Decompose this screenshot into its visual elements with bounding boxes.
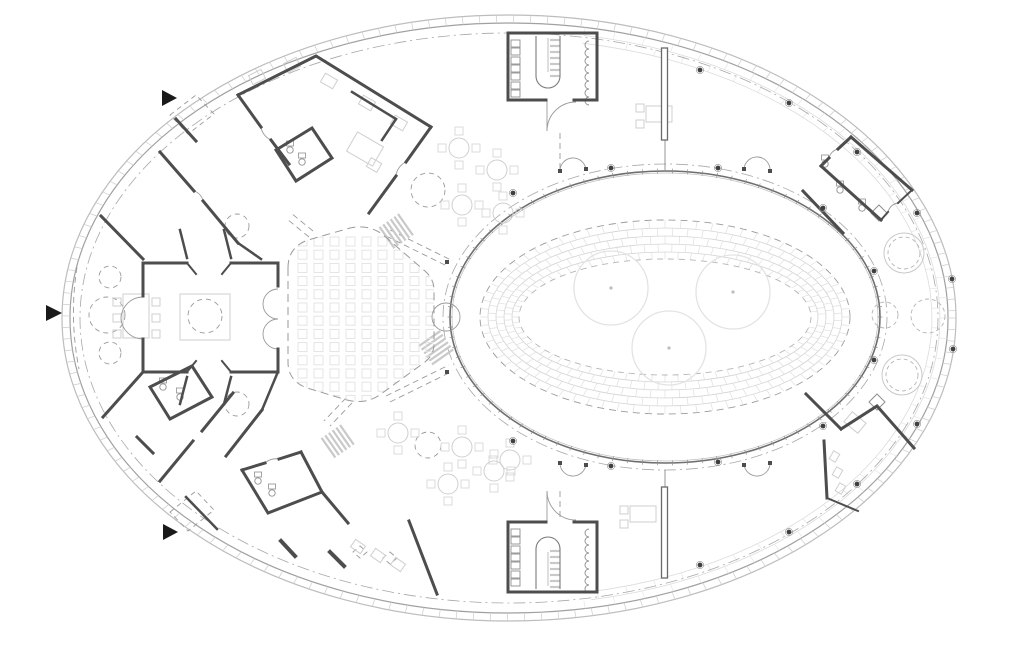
auditorium-seat [378,277,387,286]
brick-joint [492,335,500,337]
auditorium-seat [346,369,355,378]
door-post [558,169,562,173]
partition-track-dashed [386,365,449,396]
auditorium-seat [394,316,403,325]
brick-joint [568,251,573,258]
brick-joint [687,229,688,237]
brick-joint [523,374,529,379]
auditorium-seat [314,329,323,338]
brick-joint [587,398,590,405]
auditorium-seat [394,290,403,299]
brick-joint [612,232,614,240]
facade-tick [880,157,887,161]
brick-joint [703,254,705,261]
auditorium-seat [314,369,323,378]
facade-tick [73,383,81,385]
facade-tick [70,372,78,373]
brick-joint [768,373,773,379]
brick-joint [481,309,489,310]
brick-joint [502,296,510,298]
facade-band-joint [613,596,615,604]
auditorium-seat [410,382,419,391]
brick-joint [743,238,747,245]
facade-tick [877,479,884,483]
wall [330,552,344,566]
locker [511,65,520,72]
brick-joint [785,280,791,284]
brick-joint [825,310,833,311]
brick-joint [768,358,773,363]
wall [180,377,187,404]
door-post [742,463,746,467]
brick-joint [815,354,822,358]
facade-tick [792,87,797,93]
brick-joint [514,306,521,307]
brick-joint [508,331,516,333]
door-swing [396,162,406,176]
auditorium-seat [314,395,323,404]
facade-tick [241,75,246,81]
brick-joint [603,377,606,384]
brick-joint [738,367,742,373]
brick-joint [594,383,597,390]
brick-joint [497,323,505,324]
facade-band-joint [926,366,934,367]
brick-joint [747,372,751,379]
brick-joint [790,380,796,386]
auditorium-seat [410,356,419,365]
facade-band-joint [875,470,882,474]
facade-tick [142,486,149,491]
brick-joint [516,289,523,292]
wall [881,212,888,220]
brick-joint [811,295,819,297]
brick-joint [817,325,825,326]
facade-tick [462,17,463,25]
brick-joint [678,375,679,382]
locker [511,90,520,97]
brick-joint [810,261,817,266]
brick-joint [517,332,524,334]
brick-joint [707,388,709,396]
facade-tick [65,350,73,351]
brick-joint [839,300,847,301]
brick-joint [696,405,697,413]
auditorium-seat [362,263,371,272]
facade-tick [946,287,954,288]
skylight-dashed-circle [411,173,445,207]
facade-band-joint [758,544,763,550]
brick-joint [613,372,615,379]
brick-joint [567,259,572,265]
brick-joint [779,369,785,375]
brick-joint [512,283,519,286]
locker [511,82,520,89]
wall [851,137,912,190]
brick-joint [736,375,740,382]
brick-joint [758,369,763,375]
auditorium-seat [378,237,387,246]
brick-joint [545,377,550,383]
auditorium-seat [394,263,403,272]
brick-joint [497,310,505,311]
wall [276,128,332,181]
brick-joint [650,236,651,244]
locker [511,546,520,553]
table-or-desk [113,314,121,322]
brick-joint [497,355,504,358]
auditorium-seat [314,382,323,391]
facade-tick [223,545,228,551]
auditorium-seat [426,263,435,272]
facade-tick [395,25,397,33]
chair [458,426,466,434]
brick-joint [814,301,822,303]
auditorium-seat [378,290,387,299]
wall [203,201,238,243]
auditorium-seat [362,277,371,286]
brick-joint [546,243,551,249]
auditorium-seat [314,250,323,259]
wc-cistern [299,153,306,158]
brick-joint [617,223,619,231]
brick-joint [505,325,513,326]
brick-joint [814,331,822,333]
chair [475,201,483,209]
facade-tick [152,496,158,501]
brick-joint [743,389,747,396]
brick-joint [578,372,582,379]
brick-joint [534,380,540,386]
brick-joint [516,269,523,273]
brick-joint [607,386,610,394]
auditorium-seat [362,329,371,338]
auditorium-seat [346,263,355,272]
locker [511,537,520,544]
column-dot [511,191,516,196]
chair [377,429,385,437]
brick-joint [556,263,561,269]
brick-joint [830,335,838,337]
brick-joint [535,372,541,377]
brick-joint [768,271,773,276]
facade-band-joint [725,63,729,70]
brick-joint [833,305,841,306]
brick-joint [557,381,562,387]
brick-joint [703,373,705,380]
brick-joint [730,392,733,399]
table-or-desk [371,548,386,562]
brick-joint [567,369,572,375]
facade-tick [662,34,665,41]
auditorium-seat [426,395,435,404]
brick-joint [602,226,605,234]
column-dot [609,464,614,469]
planter-dashed [872,302,898,328]
facade-tick [825,523,831,529]
auditorium-seat [378,263,387,272]
chair [444,497,452,505]
brick-joint [687,397,688,405]
facade-tick [656,596,659,604]
facade-tick [672,592,675,599]
brick-joint [768,246,773,252]
facade-band-joint [889,192,896,196]
door-swing [560,158,586,172]
chair [499,226,507,234]
facade-tick [136,151,143,155]
facade-tick [547,16,548,24]
facade-tick [868,488,875,493]
auditorium-seat [330,316,339,325]
brick-course [512,252,818,382]
auditorium-seat [410,303,419,312]
wall [103,372,143,417]
brick-joint [768,365,773,371]
facade-band-joint [931,257,939,259]
round-table [438,474,458,494]
brick-joint [636,389,637,397]
brick-joint [519,354,526,358]
brick-joint [702,396,704,404]
brick-joint [768,255,773,261]
brick-joint [680,220,681,228]
brick-joint [801,255,807,260]
wall [369,176,396,213]
facade-tick [934,242,942,244]
brick-joint [557,271,562,276]
facade-band-joint [774,544,779,550]
brick-joint [508,276,515,280]
facade-tick [71,258,79,260]
brick-joint [630,380,632,388]
markers-layer [46,66,957,568]
brick-joint [756,385,760,392]
partition-track-dashed [291,213,313,231]
wall [238,95,261,127]
facade-band-joint [860,158,867,162]
brick-joint [801,347,808,351]
brick-joint [825,355,832,358]
brick-joint [707,239,709,247]
brick-joint [523,255,529,260]
brick-joint [638,253,639,260]
auditorium-seat [298,329,307,338]
auditorium-seat [426,250,435,259]
skylight-dashed-circle [188,299,222,333]
brick-joint [826,341,834,343]
brick-joint [486,340,494,342]
brick-joint [815,276,822,280]
facade-tick [924,219,932,222]
brick-joint [836,292,844,294]
wall [322,492,348,523]
facade-tick [389,602,391,610]
brick-joint [693,389,694,397]
brick-joint [486,292,494,294]
brick-joint [589,261,593,267]
brick-joint [824,303,832,304]
auditorium-seat [346,316,355,325]
brick-joint [679,236,680,244]
brick-joint [811,348,818,351]
brick-joint [808,361,815,365]
brick-joint [633,221,634,229]
door-swing [261,127,271,140]
wall [898,190,912,203]
brick-joint [491,284,499,287]
facade-tick [456,611,457,619]
facade-tick [805,94,810,100]
facade-tick [372,599,374,607]
facade-band-joint [613,32,615,40]
facade-tick [922,418,930,421]
freestanding-wall [662,487,668,578]
coat-hook [585,537,589,545]
wc-fixture [269,490,275,496]
facade-tick [115,457,122,461]
planter-outer [884,233,924,273]
auditorium-seat [410,237,419,246]
auditorium-seat [426,369,435,378]
brick-joint [711,403,713,411]
facade-tick [894,459,901,463]
brick-joint [602,401,605,409]
brick-joint [557,358,562,363]
chair [461,480,469,488]
brick-joint [625,373,627,380]
facade-band-joint [923,397,931,399]
door-post [584,167,588,171]
brick-joint [804,354,811,358]
brick-joint [516,361,523,365]
brick-joint [720,386,723,394]
brick-joint [716,394,718,402]
facade-tick [340,591,343,598]
auditorium-seat [330,263,339,272]
facade-tick [788,546,793,552]
brick-joint [532,285,538,289]
brick-joint [726,226,729,234]
facade-tick [127,161,134,165]
table-or-desk [636,104,644,112]
brick-joint [537,273,543,278]
facade-tick [858,497,864,502]
brick-joint [833,328,841,329]
facade-tick [840,119,846,124]
tree-trunk [731,290,734,293]
brick-joint [540,350,546,354]
auditorium-seat [346,382,355,391]
partition-track-dashed [330,403,352,426]
floor-plan-page [0,0,1024,653]
facade-band-joint [803,519,809,525]
column-dot [609,166,614,171]
auditorium-layer [288,227,435,405]
brick-joint [698,246,700,254]
brick-joint [497,276,504,279]
brick-joint [749,365,753,371]
brick-joint [511,295,519,297]
brick-joint [730,235,733,242]
door-post [445,370,449,374]
facade-tick [940,374,948,376]
brick-joint [546,385,551,391]
brick-joint [603,250,606,257]
brick-joint [536,265,542,270]
chair [523,456,531,464]
auditorium-seat [346,237,355,246]
auditorium-seat [330,356,339,365]
facade-tick [411,22,413,30]
auditorium-seat [330,290,339,299]
brick-joint [597,235,600,242]
auditorium-seat [330,369,339,378]
brick-joint [746,247,750,254]
chair [441,443,449,451]
brick-joint [768,263,773,269]
coat-hook [585,57,589,65]
table-or-desk [113,298,121,306]
facade-tick [378,28,380,36]
auditorium-seat [314,277,323,286]
table-or-desk [152,298,160,306]
locker [511,48,520,55]
brick-joint [638,374,639,381]
facade-band-joint [875,175,882,179]
brick-joint [532,346,538,350]
table-or-desk [351,539,366,553]
facade-tick [178,114,184,119]
auditorium-seat [298,395,307,404]
table-or-desk [829,451,840,462]
door-swing [829,149,838,158]
brick-joint [546,361,552,366]
wc-fixture [837,187,843,193]
walls-layer [101,33,914,594]
auditorium-seat [362,316,371,325]
chair [444,463,452,471]
facade-band-joint [901,210,908,213]
facade-tick [723,54,727,61]
door-post [768,461,772,465]
column-dot [716,460,721,465]
auditorium-seat [346,303,355,312]
brick-joint [527,359,534,364]
facade-tick [210,537,215,543]
facade-band-joint [698,576,702,583]
auditorium-seat [346,329,355,338]
brick-joint [513,311,520,312]
wall [838,137,851,149]
brick-joint [591,375,595,382]
brick-joint [534,248,540,254]
brick-joint [685,381,686,389]
facade-tick [703,583,707,590]
table-or-desk [620,506,628,514]
facade-tick [163,504,169,509]
chair [458,184,466,192]
wall [242,463,265,470]
brick-joint [693,237,694,245]
wall [101,216,143,259]
auditorium-boundary-dashed [288,227,434,402]
brick-joint [496,290,504,292]
brick-joint [810,311,817,312]
chair [438,144,446,152]
column-dot [872,358,877,363]
brick-course [504,244,826,390]
